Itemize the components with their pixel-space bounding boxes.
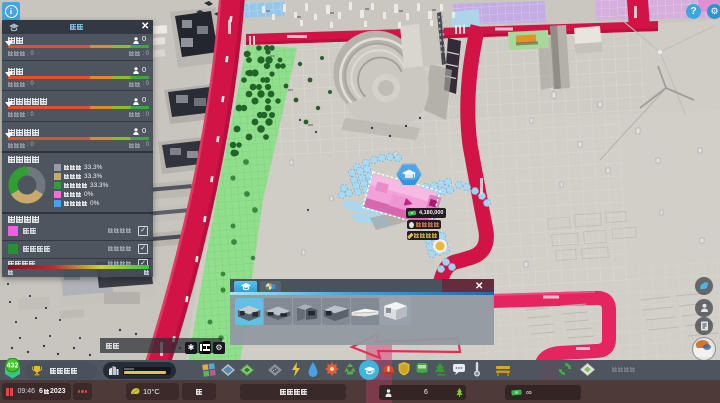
svg-text:432: 432 [7,363,19,370]
